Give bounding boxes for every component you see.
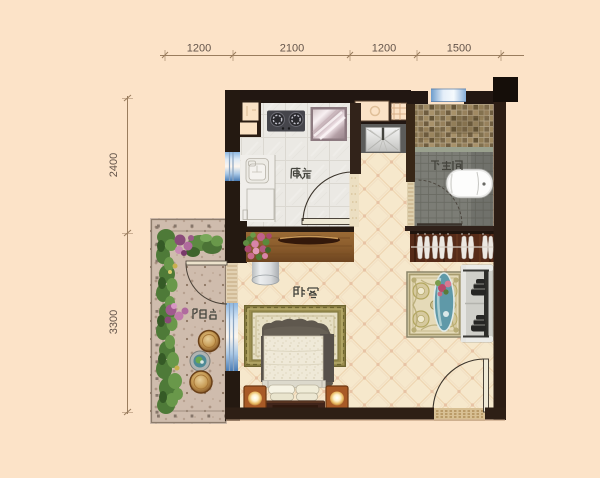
svg-text:1500: 1500 [447, 43, 471, 55]
svg-text:2400: 2400 [108, 153, 120, 177]
svg-text:1200: 1200 [372, 43, 396, 55]
svg-text:3300: 3300 [108, 310, 120, 334]
svg-text:1200: 1200 [187, 43, 211, 55]
svg-text:2100: 2100 [280, 43, 304, 55]
